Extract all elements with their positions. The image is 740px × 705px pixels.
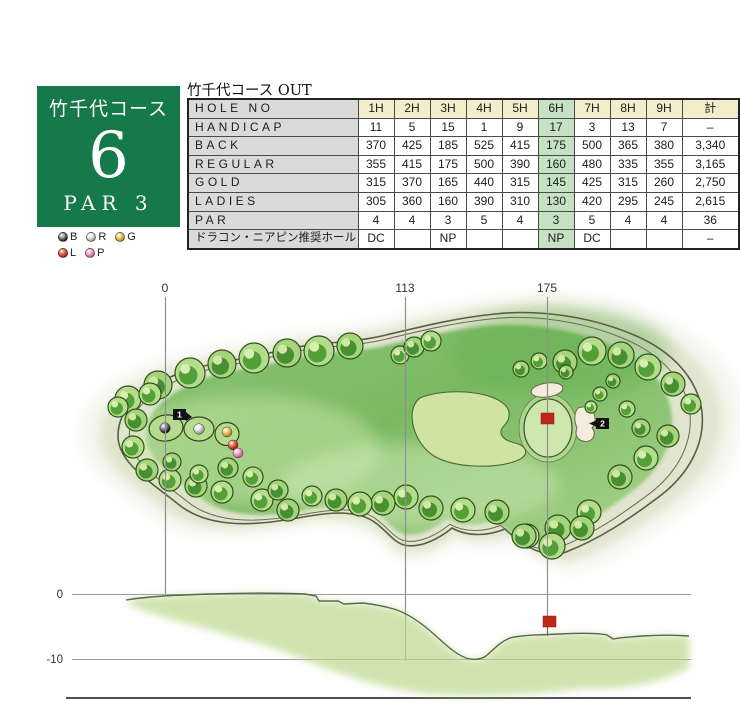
tree-icon — [516, 529, 524, 537]
tree-icon — [352, 497, 360, 505]
scorecard-cell: – — [682, 118, 739, 137]
tree-icon — [375, 496, 383, 504]
scorecard-cell: 9 — [502, 118, 538, 137]
scorecard-cell: 315 — [358, 174, 394, 193]
par-label: PAR 3 — [37, 191, 180, 215]
scorecard-cell: 415 — [502, 137, 538, 156]
scorecard-cell: 335 — [610, 155, 646, 174]
scorecard-header-holeno: HOLE NO — [188, 99, 358, 118]
tree-icon — [613, 347, 622, 356]
legend-label: P — [97, 247, 104, 259]
scorecard-cell: 4 — [610, 211, 646, 230]
scorecard-cell: 370 — [394, 174, 430, 193]
scorecard-row-label: REGULAR — [188, 155, 358, 174]
tree-icon — [425, 335, 432, 342]
scorecard-cell: 365 — [610, 137, 646, 156]
legend-item-P: P — [85, 247, 104, 259]
scorecard-cell: 5 — [394, 118, 430, 137]
scorecard-cell: 370 — [358, 137, 394, 156]
scorecard-cell: – — [682, 230, 739, 249]
distance-label-0: 0 — [162, 281, 169, 295]
tee-ball-icon-G — [222, 427, 232, 437]
tree-icon — [516, 364, 521, 369]
tree-icon — [129, 413, 136, 420]
flag-icon — [543, 616, 556, 627]
scorecard-cell — [610, 230, 646, 249]
tree-icon — [455, 503, 463, 511]
scorecard-cell: NP — [538, 230, 574, 249]
scorecard-cell: 245 — [646, 192, 682, 211]
legend-item-R: R — [86, 231, 106, 243]
scorecard-cell: 145 — [538, 174, 574, 193]
tree-icon — [622, 404, 627, 409]
scorecard-cell: 3 — [538, 211, 574, 230]
tree-icon — [193, 469, 199, 475]
legend-label: G — [127, 231, 136, 243]
legend-label: L — [70, 247, 76, 259]
scorecard-cell: DC — [574, 230, 610, 249]
scorecard-cell: 525 — [466, 137, 502, 156]
tree-icon — [244, 349, 254, 359]
tee-ball-icon-P — [85, 248, 95, 258]
tree-icon — [423, 501, 431, 509]
scorecard-cell: 4 — [646, 211, 682, 230]
scorecard-cell — [394, 230, 430, 249]
tree-icon — [408, 341, 415, 348]
scorecard-cell: 415 — [394, 155, 430, 174]
tree-icon — [215, 485, 222, 492]
tee-ball-icon-R — [86, 232, 96, 242]
tree-icon — [635, 423, 641, 429]
scorecard-row-label: GOLD — [188, 174, 358, 193]
scorecard-cell: 11 — [358, 118, 394, 137]
scorecard-cell: 440 — [466, 174, 502, 193]
scorecard-cell: 160 — [538, 155, 574, 174]
tree-icon — [281, 503, 288, 510]
scorecard-cell: 360 — [394, 192, 430, 211]
scorecard-cell: NP — [430, 230, 466, 249]
scorecard-cell: 175 — [430, 155, 466, 174]
scorecard-row-label: LADIES — [188, 192, 358, 211]
course-name: 竹千代コース — [37, 94, 180, 121]
scorecard-row-label: BACK — [188, 137, 358, 156]
scorecard-cell: 130 — [538, 192, 574, 211]
tree-icon — [222, 462, 229, 469]
scorecard-cell: 185 — [430, 137, 466, 156]
scorecard-cell: 380 — [646, 137, 682, 156]
tree-icon — [595, 390, 600, 395]
scorecard-cell: 3 — [430, 211, 466, 230]
scorecard-cell: 160 — [430, 192, 466, 211]
tree-icon — [394, 350, 400, 356]
tee-legend-row-1: BRG — [58, 231, 198, 243]
elevation-axis-label-0: 0 — [57, 589, 63, 601]
scorecard-title: 竹千代コース OUT — [187, 79, 738, 96]
tee-ball-icon-G — [115, 232, 125, 242]
pin-flag-icon — [541, 413, 554, 424]
scorecard-cell: 315 — [502, 174, 538, 193]
tree-icon — [661, 429, 668, 436]
scorecard-cell: 480 — [574, 155, 610, 174]
scorecard-cell: 425 — [394, 137, 430, 156]
tree-icon — [550, 520, 559, 529]
tee-legend-row-2: LP — [58, 247, 198, 259]
tree-icon — [583, 342, 592, 351]
scorecard-cell: 390 — [466, 192, 502, 211]
tree-icon — [561, 368, 566, 373]
scorecard-cell: 4 — [394, 211, 430, 230]
scorecard-header-cell: 3H — [430, 99, 466, 118]
tree-icon — [665, 377, 673, 385]
legend-item-G: G — [115, 231, 136, 243]
tree-icon — [126, 440, 133, 447]
legend-item-B: B — [58, 231, 77, 243]
scorecard-cell: 425 — [574, 174, 610, 193]
scorecard-header-cell: 2H — [394, 99, 430, 118]
tree-icon — [557, 355, 565, 363]
scorecard-cell: 4 — [502, 211, 538, 230]
scorecard-cell: 165 — [430, 174, 466, 193]
scorecard-cell: DC — [358, 230, 394, 249]
scorecard-header-cell: 5H — [502, 99, 538, 118]
tree-icon — [685, 398, 692, 405]
tree-icon — [574, 521, 582, 529]
scorecard-row-label: ドラコン・ニアピン推奨ホール — [188, 230, 358, 249]
point-marker-1-label: 1 — [177, 410, 182, 420]
scorecard-header-cell: 4H — [466, 99, 502, 118]
tree-icon — [163, 473, 170, 480]
tree-icon — [640, 359, 649, 368]
scorecard-cell: 390 — [502, 155, 538, 174]
hole-number: 6 — [37, 124, 180, 188]
scorecard-cell: 500 — [466, 155, 502, 174]
scorecard-cell: 500 — [574, 137, 610, 156]
legend-label: B — [70, 231, 77, 243]
scorecard-cell: 260 — [646, 174, 682, 193]
tree-icon — [140, 463, 147, 470]
tee-ball-icon-R — [194, 424, 205, 435]
tree-icon — [309, 342, 319, 352]
scorecard-cell: 4 — [358, 211, 394, 230]
scorecard-cell: 315 — [610, 174, 646, 193]
tee-ball-icon-B — [58, 232, 68, 242]
tree-icon — [180, 364, 190, 374]
tree-icon — [342, 338, 351, 347]
legend-label: R — [98, 231, 106, 243]
scorecard-cell: 420 — [574, 192, 610, 211]
scorecard-cell: 355 — [646, 155, 682, 174]
tree-icon — [638, 451, 646, 459]
scorecard-cell: 3,340 — [682, 137, 739, 156]
scorecard-cell: 5 — [466, 211, 502, 230]
scorecard-cell: 17 — [538, 118, 574, 137]
tree-icon — [587, 403, 591, 407]
tree-icon — [329, 493, 336, 500]
scorecard-cell: 2,615 — [682, 192, 739, 211]
distance-label-175: 175 — [537, 281, 557, 295]
scorecard-cell — [502, 230, 538, 249]
scorecard-table: HOLE NO1H2H3H4H5H6H7H8H9H計HANDICAP115151… — [187, 98, 740, 250]
scorecard-cell: 355 — [358, 155, 394, 174]
scorecard-row-label: PAR — [188, 211, 358, 230]
elevation-axis-label-minus10: -10 — [46, 654, 63, 666]
tree-icon — [143, 387, 150, 394]
scorecard-header-cell: 9H — [646, 99, 682, 118]
distance-label-113: 113 — [395, 281, 414, 295]
scorecard-cell: 7 — [646, 118, 682, 137]
point-marker-2-label: 2 — [600, 419, 605, 429]
tree-icon — [489, 505, 497, 513]
tree-icon — [166, 457, 172, 463]
scorecard-header-cell: 1H — [358, 99, 394, 118]
tree-icon — [612, 470, 620, 478]
tree-icon — [255, 493, 262, 500]
scorecard-cell: 1 — [466, 118, 502, 137]
scorecard-cell: 3,165 — [682, 155, 739, 174]
legend-item-L: L — [58, 247, 76, 259]
scorecard-cell: 175 — [538, 137, 574, 156]
tree-icon — [608, 377, 613, 382]
scorecard-header-cell: 6H — [538, 99, 574, 118]
tree-icon — [213, 355, 222, 364]
tee-ball-icon-P — [233, 448, 243, 458]
scorecard-cell — [646, 230, 682, 249]
tree-icon — [534, 356, 539, 361]
scorecard-header-cell: 計 — [682, 99, 739, 118]
scorecard-cell: 5 — [574, 211, 610, 230]
scorecard-cell: 3 — [574, 118, 610, 137]
scorecard-cell: 295 — [610, 192, 646, 211]
scorecard-cell — [466, 230, 502, 249]
scorecard-header-cell: 8H — [610, 99, 646, 118]
tree-icon — [112, 401, 119, 408]
scorecard-cell: 310 — [502, 192, 538, 211]
scorecard-cell: 15 — [430, 118, 466, 137]
scorecard-cell: 36 — [682, 211, 739, 230]
scorecard-cell: 13 — [610, 118, 646, 137]
hole-card: 竹千代コース 6 PAR 3 — [37, 86, 180, 227]
tree-icon — [306, 490, 313, 497]
tree-icon — [581, 505, 589, 513]
tee-legend: BRG LP — [58, 231, 198, 263]
scorecard-header-cell: 7H — [574, 99, 610, 118]
tree-icon — [278, 344, 287, 353]
scorecard-cell: 2,750 — [682, 174, 739, 193]
elevation-profile: 0 -10 — [46, 589, 691, 698]
terrain-fill — [126, 593, 689, 695]
tree-icon — [247, 471, 254, 478]
scorecard-row-label: HANDICAP — [188, 118, 358, 137]
scorecard-cell: 305 — [358, 192, 394, 211]
scorecard: 竹千代コース OUT HOLE NO1H2H3H4H5H6H7H8H9H計HAN… — [187, 79, 738, 250]
tree-icon — [272, 484, 279, 491]
tee-ball-icon-L — [58, 248, 68, 258]
